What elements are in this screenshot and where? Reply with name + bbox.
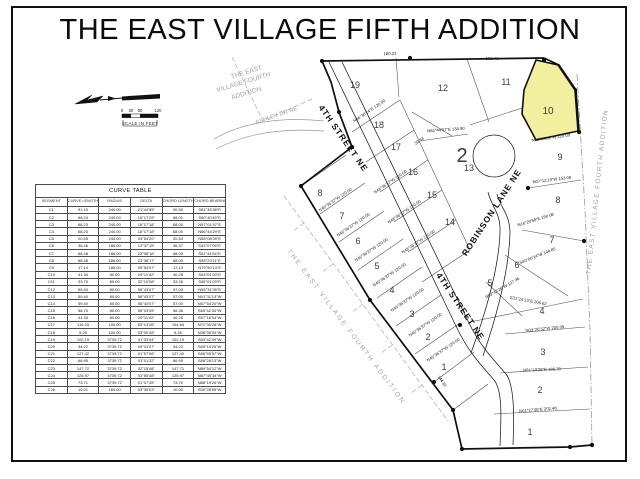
curve-table-cell: S85°14'25"W <box>194 343 226 350</box>
curve-table-cell: N57°01'47"E <box>194 221 226 228</box>
curve-table-cell: 57.00 <box>162 300 194 307</box>
curve-table-cell: S43°07'09"E <box>194 242 226 249</box>
lot-number: 11 <box>501 77 510 87</box>
curve-table-cell: N71°30'26"W <box>194 321 226 328</box>
curve-table-cell: 01°55'48" <box>130 372 162 379</box>
curve-table-cell: 58.70 <box>67 307 99 314</box>
highlighted-lot-10[interactable] <box>522 60 578 140</box>
curve-table-cell: 68.00 <box>162 249 194 256</box>
curve-table-cell: C20 <box>36 343 68 350</box>
curve-table-cell: N55°31'35"E <box>194 285 226 292</box>
lot-number: 3 <box>409 309 414 319</box>
curve-table-cell: 68.23 <box>67 228 99 235</box>
curve-table-cell: 01°07'45" <box>130 379 162 386</box>
curve-table-cell: 57.00 <box>162 285 194 292</box>
curve-table-cell: 01°57'08" <box>130 350 162 357</box>
curve-table-cell: N86°19'26"W <box>194 379 226 386</box>
street-name-label: ROBINSON LANE NE <box>460 167 524 258</box>
curve-table-cell: 63°13'26" <box>130 321 162 328</box>
curve-table-cell: 3739.72 <box>99 350 131 357</box>
curve-table-cell: S80°40'49"E <box>194 214 226 221</box>
curve-table-cell: 68.48 <box>67 249 99 256</box>
curve-table-cell: C12 <box>36 285 68 292</box>
curve-table-row: C185.26100.0003°00'48"5.26N38°06'04"W <box>36 329 226 336</box>
curve-table-cell: 110.33 <box>67 321 99 328</box>
curve-table-cell: 10.00 <box>162 386 194 393</box>
cul-de-sac <box>473 135 515 177</box>
curve-table-cell: S61°44'54"E <box>194 249 226 256</box>
curve-table-cell: 23°38'17" <box>130 257 162 264</box>
curve-table-cell: 03°35'03" <box>130 386 162 393</box>
lot-line <box>320 183 365 214</box>
curve-table-row: C520.55240.0004°54'20"20.54N58°08'39"E <box>36 235 226 242</box>
curve-table-cell: S88°28'13"W <box>194 357 226 364</box>
lot-number: 10 <box>542 106 554 117</box>
curve-table-cell: S81°35'38"E <box>194 206 226 213</box>
curve-table-cell: 40.25 <box>162 271 194 278</box>
curve-table-cell: C23 <box>36 364 68 371</box>
curve-table-cell: 68.48 <box>67 257 99 264</box>
curve-table-cell: 73.71 <box>67 379 99 386</box>
curve-table-cell: 80.00 <box>99 285 131 292</box>
lot-number: 7 <box>339 211 344 221</box>
lot-number: 4 <box>539 306 544 316</box>
curve-table-row: C2610.01160.0003°35'03"10.00S55°28'59"W <box>36 386 226 393</box>
curve-table-cell: N79°50'13"E <box>194 264 226 271</box>
curve-table-cell: 41.34 <box>67 271 99 278</box>
curve-table-cell: 56°43'07" <box>130 300 162 307</box>
lot-number: 18 <box>374 120 384 130</box>
curve-table-header: CURVE LENGTH <box>67 197 99 206</box>
lot-number: 7 <box>549 235 554 245</box>
curve-table-cell: 80.00 <box>99 300 131 307</box>
scale-tick: 0 <box>121 108 124 113</box>
lot-number: 2 <box>425 332 430 342</box>
curve-table-row: C1641.3480.0029°11'42"40.25S57°16'54"W <box>36 314 226 321</box>
curve-table-cell: N01°11'13"W <box>194 293 226 300</box>
curve-table-cell: C6 <box>36 242 68 249</box>
curve-table-cell: 100.00 <box>99 329 131 336</box>
curve-table-cell: 127.42 <box>162 350 194 357</box>
bearing-label: N48°36'37"W 120.00 <box>373 168 409 194</box>
curve-table-cell: C26 <box>36 386 68 393</box>
curve-table-cell: 20.55 <box>67 235 99 242</box>
north-arrow-icon <box>75 94 160 104</box>
curve-table-cell: C14 <box>36 300 68 307</box>
bearing-label: N46°36'37"W 120.00 <box>426 336 462 362</box>
corner-dot <box>368 298 372 302</box>
curve-table-header: RADIUS <box>99 197 131 206</box>
bearing-label: 144.82 <box>437 374 449 388</box>
curve-table-cell: S85°01'03"E <box>194 278 226 285</box>
bearing-label: N16°20'58"E 150.08 <box>517 211 555 227</box>
curve-table-cell: 16°17'18" <box>130 221 162 228</box>
lot-number: 4 <box>389 285 394 295</box>
lot-number: 3 <box>540 347 545 357</box>
curve-table-cell: 23°38'16" <box>130 249 162 256</box>
curve-table-cell: 66.95 <box>67 357 99 364</box>
scale-caption: SCALE IN FEET <box>122 121 158 126</box>
corner-dot <box>432 380 436 384</box>
curve-table-cell: 16°17'18" <box>130 228 162 235</box>
curve-table-cell: C13 <box>36 293 68 300</box>
curve-table-cell: 240.00 <box>99 221 131 228</box>
curve-table-cell: 00°31'27" <box>130 343 162 350</box>
curve-table: CURVE TABLESEGMENTCURVE LENGTHRADIUSDELT… <box>35 184 226 394</box>
lot-number: 19 <box>350 80 360 90</box>
lot-line <box>467 59 489 122</box>
curve-table-cell: 80.00 <box>99 314 131 321</box>
curve-table-cell: 80.00 <box>99 278 131 285</box>
curve-table-row: C768.48186.0023°38'16"68.00S61°44'54"E <box>36 249 226 256</box>
bearing-label: N62°44'07"E 134.90 <box>427 126 466 134</box>
curve-table-cell: 125.97 <box>67 372 99 379</box>
lot-number: 1 <box>527 427 532 437</box>
curve-table-cell: 16°17'29" <box>130 214 162 221</box>
curve-table-row: C21127.423739.7201°57'08"127.42S86°55'57… <box>36 350 226 357</box>
lot-number: 5 <box>374 261 379 271</box>
lot-line <box>420 134 468 141</box>
bearing-label: 180.23 <box>384 51 398 56</box>
lot-number: 8 <box>317 188 322 198</box>
curve-table-cell: 34.22 <box>162 343 194 350</box>
curve-table-cell: C11 <box>36 278 68 285</box>
curve-table-row: C19102.193739.7201°33'54"102.19S83°42'49… <box>36 336 226 343</box>
curve-table-cell: C4 <box>36 228 68 235</box>
curve-table-cell: 240.00 <box>99 228 131 235</box>
curve-table-row: C1041.3480.0029°11'42"40.25S63°01'20"E <box>36 271 226 278</box>
curve-table-row: C1359.4080.0056°43'07"57.00N01°11'13"W <box>36 293 226 300</box>
curve-table-cell: 5.26 <box>162 329 194 336</box>
plat-sheet: THE EAST VILLAGE FIFTH ADDITION <box>0 0 640 479</box>
curve-table-row: C1133.7080.0032°10'08"33.26S85°01'03"E <box>36 278 226 285</box>
curve-table-row: C368.23240.0016°17'18"68.00N57°01'47"E <box>36 221 226 228</box>
curve-table-cell: C15 <box>36 307 68 314</box>
lot-number: 9 <box>557 152 562 162</box>
curve-table-cell: 20.54 <box>162 235 194 242</box>
curve-table-cell: 3739.72 <box>99 357 131 364</box>
curve-table-cell: 41.34 <box>67 314 99 321</box>
curve-table-cell: N66°44'29"E <box>194 228 226 235</box>
curve-table-cell: 186.00 <box>99 249 131 256</box>
lot-line <box>380 160 428 192</box>
curve-table-cell: C1 <box>36 206 68 213</box>
corner-dot <box>337 110 341 114</box>
corner-dot <box>460 447 464 451</box>
curve-table-cell: S65°42'34"W <box>194 307 226 314</box>
curve-table-cell: 56.36 <box>162 307 194 314</box>
corner-dot <box>408 56 412 60</box>
curve-table-cell: 102.19 <box>67 336 99 343</box>
curve-table-cell: 147.71 <box>162 364 194 371</box>
curve-table-cell: C18 <box>36 329 68 336</box>
curve-table-cell: C21 <box>36 350 68 357</box>
curve-table-cell: 40.25 <box>162 314 194 321</box>
curve-table-cell: 59.40 <box>67 285 99 292</box>
bearing-label: N48°36'37"W 120.00 <box>401 228 437 254</box>
curve-table-cell: S57°16'54"W <box>194 314 226 321</box>
curve-table-cell: 3739.72 <box>99 343 131 350</box>
scale-tick-labels: 03060120 <box>121 108 162 113</box>
curve-table-cell: 59.40 <box>67 300 99 307</box>
curve-table-cell: 02°15'48" <box>130 364 162 371</box>
curve-table-cell: 66.95 <box>162 357 194 364</box>
lot-number: 2 <box>537 385 542 395</box>
curve-table-cell: 03°00'48" <box>130 329 162 336</box>
curve-table-row: C2266.953739.7201°01'32"66.95S88°28'13"W <box>36 357 226 364</box>
curve-table-row: C2573.713739.7201°07'45"73.70N86°19'26"W <box>36 379 226 386</box>
lot-line <box>453 384 488 410</box>
bearing-label: N46°36'37"W 120.00 <box>390 286 426 312</box>
curve-table-cell: 186.00 <box>99 264 131 271</box>
curve-table-title: CURVE TABLE <box>36 185 226 198</box>
curve-table-cell: 240.00 <box>99 206 131 213</box>
bearing-label: 188.40 <box>486 56 500 61</box>
curve-table-cell: C5 <box>36 235 68 242</box>
curve-table-cell: 100.00 <box>99 321 131 328</box>
curve-table-row: C917.14186.0005°54'07"17.13N79°50'13"E <box>36 264 226 271</box>
curve-table-cell: 33.26 <box>162 278 194 285</box>
curve-table-cell: 3739.72 <box>99 336 131 343</box>
curve-table-cell: 33.70 <box>67 278 99 285</box>
street-name-label: 4TH STREET NE <box>434 271 487 342</box>
curve-table-header: DELTA <box>130 197 162 206</box>
curve-table-cell: 21°44'55" <box>130 206 162 213</box>
lot-number: 8 <box>555 195 560 205</box>
curve-table-cell: 3739.72 <box>99 379 131 386</box>
ashley-drive-lines <box>214 119 324 149</box>
corner-dot <box>568 445 572 449</box>
curve-table-cell: 01°01'32" <box>130 357 162 364</box>
curve-table-cell: 17.14 <box>67 264 99 271</box>
curve-table-header: CHORD BEARING <box>194 197 226 206</box>
curve-table-cell: N57°54'20"W <box>194 300 226 307</box>
curve-table-cell: 36.37 <box>162 242 194 249</box>
block-number: 2 <box>456 145 467 167</box>
curve-table-row: C1259.4080.0056°43'07"57.00N55°31'35"E <box>36 285 226 292</box>
curve-table-cell: 68.24 <box>67 214 99 221</box>
bearing-label: N03°26'32"W 205.05 <box>525 324 565 333</box>
curve-table-row: C268.24240.0016°17'29"68.01S80°40'49"E <box>36 214 226 221</box>
lot-line <box>470 108 522 125</box>
lot-number: 17 <box>391 142 401 152</box>
curve-table-cell: 59.40 <box>67 293 99 300</box>
curve-table-cell: C8 <box>36 257 68 264</box>
curve-table-cell: 57.00 <box>162 293 194 300</box>
curve-table-cell: 240.00 <box>99 214 131 221</box>
corner-dot <box>590 443 594 447</box>
corner-dot <box>582 239 586 243</box>
curve-table-cell: 160.00 <box>99 386 131 393</box>
curve-table-cell: 240.00 <box>99 235 131 242</box>
curve-table-cell: 127.42 <box>67 350 99 357</box>
curve-table-row: C468.23240.0016°17'18"68.00N66°44'29"E <box>36 228 226 235</box>
curve-table-row: C1558.7080.0056°03'05"56.36S65°42'34"W <box>36 307 226 314</box>
lot-line <box>396 58 399 97</box>
curve-table-cell: S63°01'20"E <box>194 271 226 278</box>
curve-table-row: C1459.4080.0056°43'07"57.00N57°54'20"W <box>36 300 226 307</box>
curve-table-cell: 01°33'54" <box>130 336 162 343</box>
curve-table-cell: 80.00 <box>99 293 131 300</box>
curve-table-cell: N89°54'12"W <box>194 364 226 371</box>
curve-table-cell: C25 <box>36 379 68 386</box>
bearing-label: N01°27'35"E 202.48 <box>519 405 558 413</box>
curve-table-cell: C24 <box>36 372 68 379</box>
curve-table-cell: 102.19 <box>162 336 194 343</box>
curve-table-cell: C7 <box>36 249 68 256</box>
curve-table-cell: 186.00 <box>99 242 131 249</box>
lot-number: 6 <box>355 236 360 246</box>
curve-table-header: SEGMENT <box>36 197 68 206</box>
corner-dot <box>299 184 303 188</box>
curve-table-cell: C10 <box>36 271 68 278</box>
bearing-label: N46°36'37"W 120.00 <box>318 186 354 212</box>
curve-table-cell: 68.00 <box>162 221 194 228</box>
curve-table-cell: 147.72 <box>67 364 99 371</box>
curve-table-row: C17110.33100.0063°13'26"104.84N71°30'26"… <box>36 321 226 328</box>
curve-table-cell: N58°08'39"E <box>194 235 226 242</box>
bearing-label: N07°12'19"W 153.08 <box>532 175 572 185</box>
curve-table-cell: 36.46 <box>67 242 99 249</box>
curve-table-cell: 32°10'08" <box>130 278 162 285</box>
curve-table-cell: S83°42'49"W <box>194 336 226 343</box>
curve-table-row: C24125.973739.7201°55'48"125.97N87°45'34… <box>36 372 226 379</box>
corner-dot <box>458 323 462 327</box>
curve-table-cell: 56°03'05" <box>130 307 162 314</box>
curve-table-cell: C17 <box>36 321 68 328</box>
lot-number: 5 <box>487 278 492 288</box>
curve-table-cell: 186.00 <box>99 257 131 264</box>
curve-table-cell: 29°11'42" <box>130 271 162 278</box>
curve-table-cell: C16 <box>36 314 68 321</box>
curve-table-cell: 3739.72 <box>99 372 131 379</box>
curve-table-cell: 34.22 <box>67 343 99 350</box>
lot-number: 16 <box>408 167 418 177</box>
scale-tick: 30 <box>129 108 134 113</box>
curve-table-cell: 56°43'07" <box>130 293 162 300</box>
bearing-label: 29.53 <box>413 135 425 145</box>
adjacent-addition-label: THE EAST VILLAGE FOURTH ADDITION <box>585 109 609 275</box>
adjacent-addition-label: ASHLEY DR NE <box>255 106 298 126</box>
curve-table-cell: S55°28'59"W <box>194 386 226 393</box>
curve-table-cell: 5.26 <box>67 329 99 336</box>
curve-table-cell: N38°06'04"W <box>194 329 226 336</box>
curve-table-cell: 68.23 <box>67 221 99 228</box>
curve-table-cell: 05°54'07" <box>130 264 162 271</box>
lot-number: 14 <box>445 217 455 227</box>
curve-table-cell: 68.01 <box>162 214 194 221</box>
curve-table-row: C191.10240.0021°44'55"90.55S81°35'38"E <box>36 206 226 213</box>
curve-table-cell: 3739.72 <box>99 364 131 371</box>
curve-table-cell: S85°23'11"E <box>194 257 226 264</box>
curve-table-row: C2034.223739.7200°31'27"34.22S85°14'25"W <box>36 343 226 350</box>
curve-table-cell: 68.00 <box>162 257 194 264</box>
corner-dot <box>320 59 324 63</box>
curve-table-cell: 68.00 <box>162 228 194 235</box>
curve-table-cell: C22 <box>36 357 68 364</box>
corner-dot <box>526 186 530 190</box>
curve-table-row: C23147.723739.7202°15'48"147.71N89°54'12… <box>36 364 226 371</box>
lot-number: 15 <box>427 190 437 200</box>
bearing-label: N48°36'37"W 120.00 <box>387 198 423 224</box>
curve-table-cell: 17.13 <box>162 264 194 271</box>
scale-tick: 120 <box>155 108 163 113</box>
corner-dot <box>451 408 455 412</box>
curve-table-row: C868.48186.0023°38'17"68.00S85°23'11"E <box>36 257 226 264</box>
curve-table-cell: 125.97 <box>162 372 194 379</box>
curve-table-cell: 04°54'20" <box>130 235 162 242</box>
curve-table-row: C636.46186.0013°37'15"36.37S43°07'09"E <box>36 242 226 249</box>
curve-table-cell: 104.84 <box>162 321 194 328</box>
lot-number: 6 <box>514 260 519 270</box>
bearing-label: N01°10'26"E 186.78 <box>523 366 562 372</box>
curve-table-cell: 80.00 <box>99 307 131 314</box>
curve-table-cell: 80.00 <box>99 271 131 278</box>
lot-number: 1 <box>441 362 446 372</box>
curve-table-header: CHORD LENGTH <box>162 197 194 206</box>
curve-table-cell: S86°55'57"W <box>194 350 226 357</box>
curve-table-cell: 56°43'07" <box>130 285 162 292</box>
lot-number: 12 <box>438 83 448 93</box>
scale-bar: 03060120 SCALE IN FEET <box>121 108 162 126</box>
curve-table-cell: C2 <box>36 214 68 221</box>
plat-labels: THE EASTVILLAGE FOURTHADDITIONASHLEY DR … <box>216 51 610 437</box>
curve-table-cell: C19 <box>36 336 68 343</box>
curve-table-cell: C3 <box>36 221 68 228</box>
curve-table-cell: N87°45'34"W <box>194 372 226 379</box>
curve-table-cell: 91.10 <box>67 206 99 213</box>
curve-table-cell: 10.01 <box>67 386 99 393</box>
scale-tick: 60 <box>138 108 143 113</box>
bearing-label: S31°24'13"E 206.62 <box>509 295 547 307</box>
curve-table-cell: C9 <box>36 264 68 271</box>
curve-table-cell: 90.55 <box>162 206 194 213</box>
curve-table-cell: 13°37'15" <box>130 242 162 249</box>
curve-table-cell: 73.70 <box>162 379 194 386</box>
bearing-label: S40°06'14"W 144.85 <box>519 246 557 265</box>
curve-table-cell: 29°11'42" <box>130 314 162 321</box>
